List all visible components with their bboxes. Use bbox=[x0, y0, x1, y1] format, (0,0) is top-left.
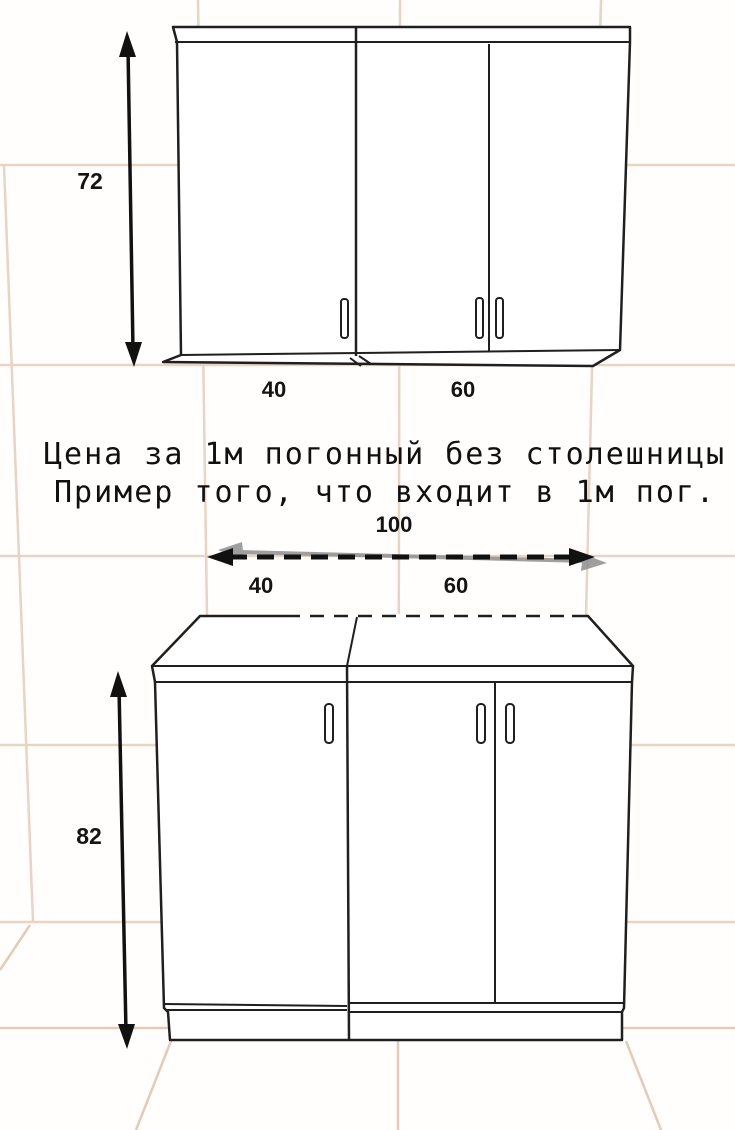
kitchen-dimension-diagram: 72 40 60 100 40 60 82 Цена за 1м погонны… bbox=[0, 0, 735, 1130]
base-door-handle-1 bbox=[325, 704, 333, 743]
base-section2-width-label: 60 bbox=[416, 575, 496, 597]
base-cabinet-body bbox=[152, 616, 633, 1040]
arrow-down-icon bbox=[125, 342, 142, 367]
arrow-down-icon bbox=[118, 1024, 135, 1049]
wall-cabinet bbox=[163, 27, 630, 366]
wall-section1-width-label: 40 bbox=[234, 379, 314, 401]
base-section1-width-label: 40 bbox=[221, 575, 301, 597]
total-width-label: 100 bbox=[354, 514, 434, 536]
base-door-handle-3 bbox=[506, 704, 514, 743]
arrow-up-icon bbox=[110, 671, 127, 697]
wall-height-label: 72 bbox=[50, 170, 130, 193]
base-height-label: 82 bbox=[49, 825, 129, 848]
wall-section2-width-label: 60 bbox=[423, 379, 503, 401]
wall-door-handle-1 bbox=[341, 299, 348, 338]
arrow-up-icon bbox=[119, 31, 136, 57]
wall-cabinet-body bbox=[163, 27, 630, 366]
wall-door-handle-3 bbox=[496, 298, 503, 338]
caption-example-line: Пример того, что входит в 1м пог. bbox=[54, 478, 716, 508]
base-height-arrow bbox=[110, 671, 135, 1049]
caption-price-line: Цена за 1м погонный без столешницы bbox=[44, 440, 726, 470]
wall-door-handle-2 bbox=[476, 298, 483, 338]
wall-height-arrow bbox=[119, 31, 142, 367]
base-door-handle-2 bbox=[477, 704, 485, 743]
base-cabinet bbox=[152, 616, 633, 1040]
